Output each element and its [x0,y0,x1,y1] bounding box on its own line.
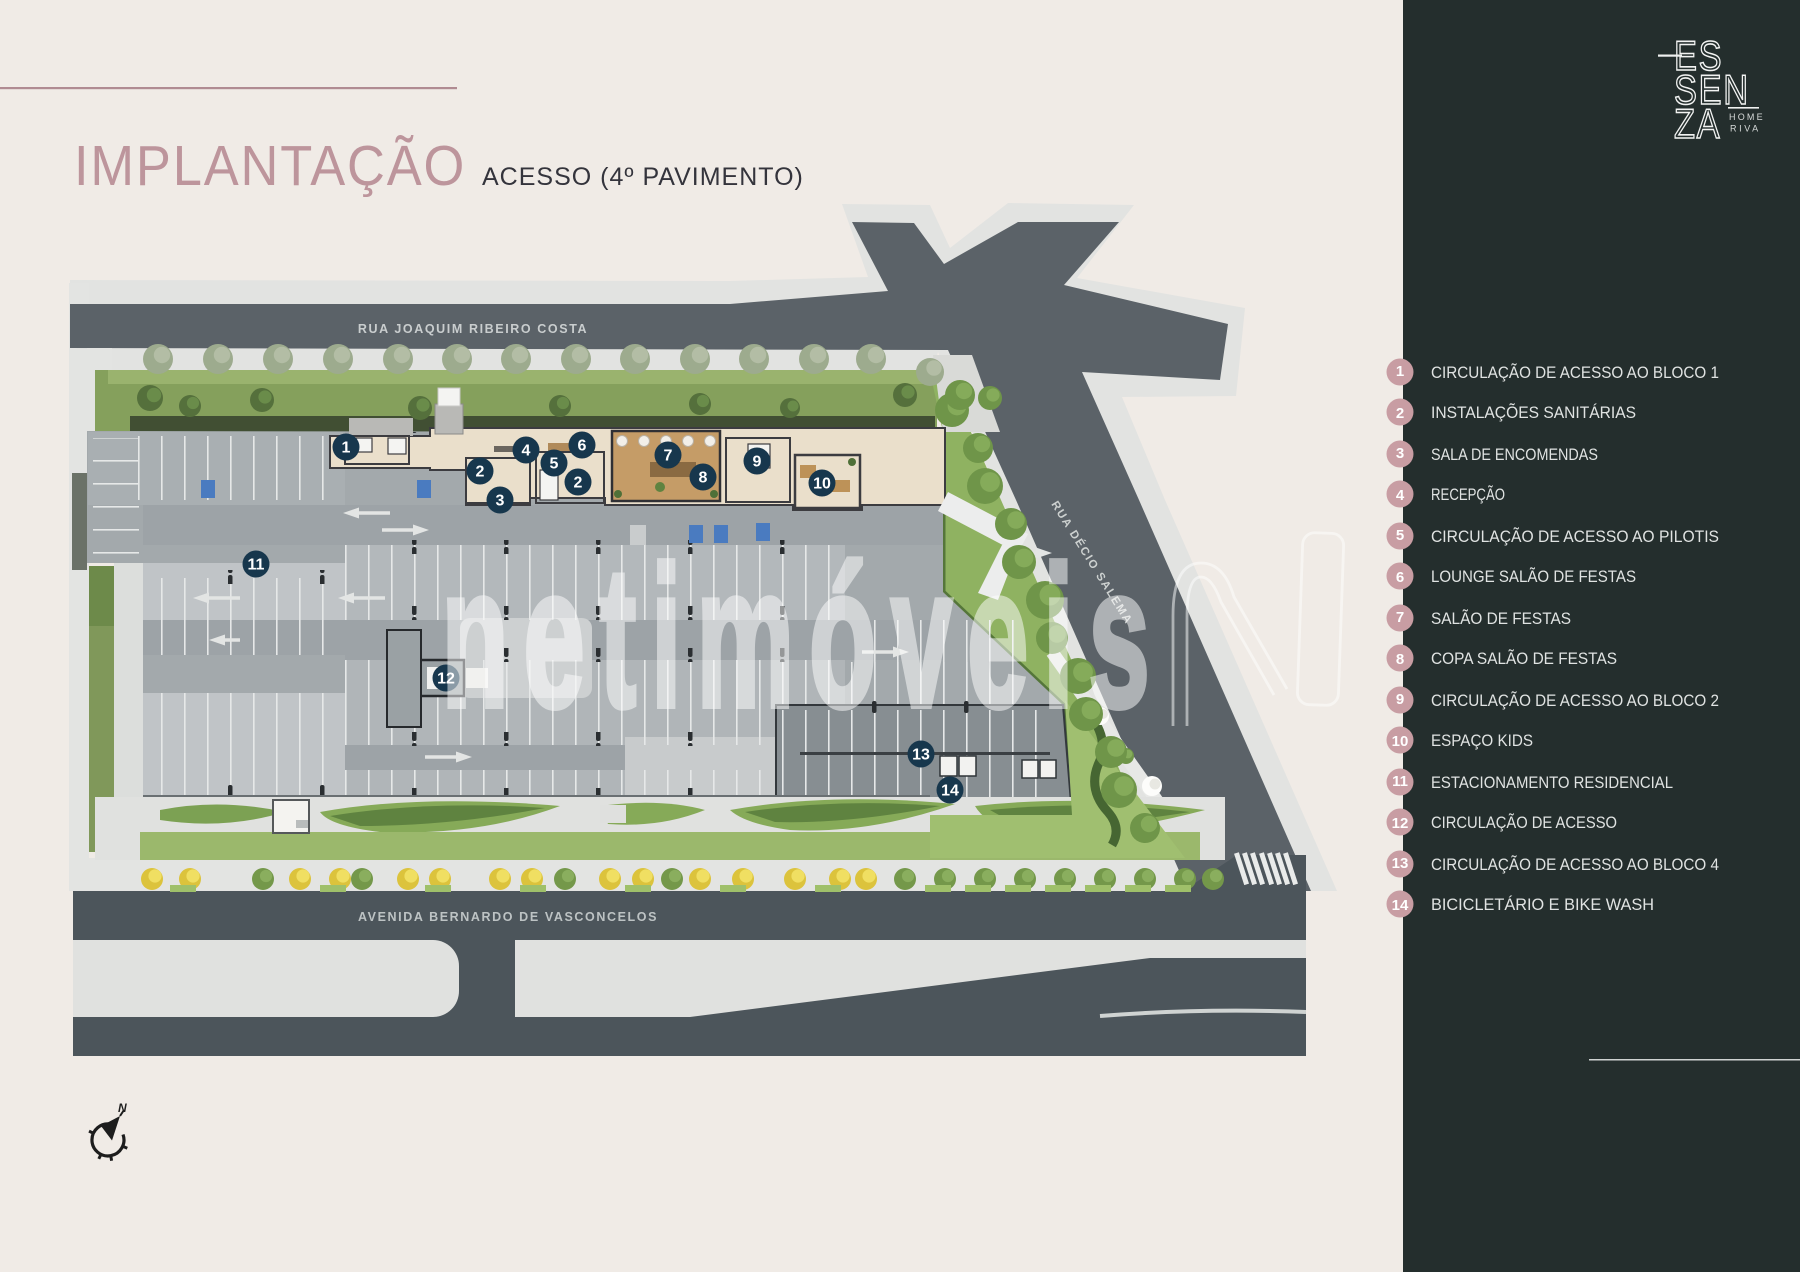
svg-text:CIRCULAÇÃO DE ACESSO: CIRCULAÇÃO DE ACESSO [1431,813,1617,832]
svg-text:3: 3 [496,493,505,510]
svg-text:ESPAÇO KIDS: ESPAÇO KIDS [1431,731,1533,750]
svg-text:6: 6 [578,438,587,455]
svg-text:4: 4 [1396,487,1405,504]
svg-text:RIVA: RIVA [1730,124,1761,134]
svg-text:CIRCULAÇÃO DE ACESSO AO PILOTI: CIRCULAÇÃO DE ACESSO AO PILOTIS [1431,527,1719,546]
svg-text:SALA DE ENCOMENDAS: SALA DE ENCOMENDAS [1431,445,1598,464]
svg-text:COPA SALÃO DE FESTAS: COPA SALÃO DE FESTAS [1431,649,1617,668]
svg-text:11: 11 [248,557,265,574]
svg-text:9: 9 [753,454,762,471]
svg-text:7: 7 [664,448,673,465]
svg-text:RUA JOAQUIM RIBEIRO COSTA: RUA JOAQUIM RIBEIRO COSTA [358,322,588,336]
svg-text:N: N [118,1101,127,1115]
svg-text:ESTACIONAMENTO RESIDENCIAL: ESTACIONAMENTO RESIDENCIAL [1431,773,1673,792]
svg-text:4: 4 [522,443,531,460]
svg-text:10: 10 [1392,733,1409,750]
svg-text:12: 12 [1392,815,1409,832]
svg-text:7: 7 [1396,609,1404,626]
svg-text:2: 2 [1396,405,1404,422]
svg-text:14: 14 [941,783,959,800]
svg-text:ZA: ZA [1674,101,1721,148]
svg-text:CIRCULAÇÃO DE ACESSO AO BLOCO: CIRCULAÇÃO DE ACESSO AO BLOCO 1 [1431,363,1719,382]
svg-text:11: 11 [1392,773,1408,790]
svg-text:AVENIDA BERNARDO DE VASCONCELO: AVENIDA BERNARDO DE VASCONCELOS [358,910,658,924]
svg-text:1: 1 [1396,363,1404,380]
svg-text:LOUNGE SALÃO DE FESTAS: LOUNGE SALÃO DE FESTAS [1431,567,1636,586]
svg-text:1: 1 [342,440,351,457]
svg-text:BICICLETÁRIO E BIKE WASH: BICICLETÁRIO E BIKE WASH [1431,895,1654,914]
svg-text:9: 9 [1396,691,1404,708]
svg-text:INSTALAÇÕES SANITÁRIAS: INSTALAÇÕES SANITÁRIAS [1431,403,1636,422]
svg-text:8: 8 [1396,651,1404,668]
svg-text:2: 2 [574,475,583,492]
svg-text:8: 8 [699,470,708,487]
svg-text:10: 10 [813,476,831,493]
svg-text:RECEPÇÃO: RECEPÇÃO [1431,485,1505,504]
svg-text:CIRCULAÇÃO DE ACESSO AO BLOCO: CIRCULAÇÃO DE ACESSO AO BLOCO 4 [1431,855,1719,874]
svg-text:CIRCULAÇÃO DE ACESSO AO BLOCO: CIRCULAÇÃO DE ACESSO AO BLOCO 2 [1431,691,1719,710]
svg-text:14: 14 [1392,897,1409,914]
svg-text:IMPLANTAÇÃO: IMPLANTAÇÃO [74,133,466,198]
svg-text:5: 5 [550,456,559,473]
svg-text:ACESSO (4º PAVIMENTO): ACESSO (4º PAVIMENTO) [482,163,804,191]
svg-text:3: 3 [1396,445,1404,462]
svg-text:13: 13 [1392,855,1409,872]
svg-text:2: 2 [476,464,485,481]
svg-text:6: 6 [1396,569,1404,586]
svg-text:netimóveis: netimóveis [441,526,1164,749]
svg-text:5: 5 [1396,527,1404,544]
svg-text:SALÃO DE FESTAS: SALÃO DE FESTAS [1431,609,1571,628]
svg-text:HOME: HOME [1729,112,1765,122]
